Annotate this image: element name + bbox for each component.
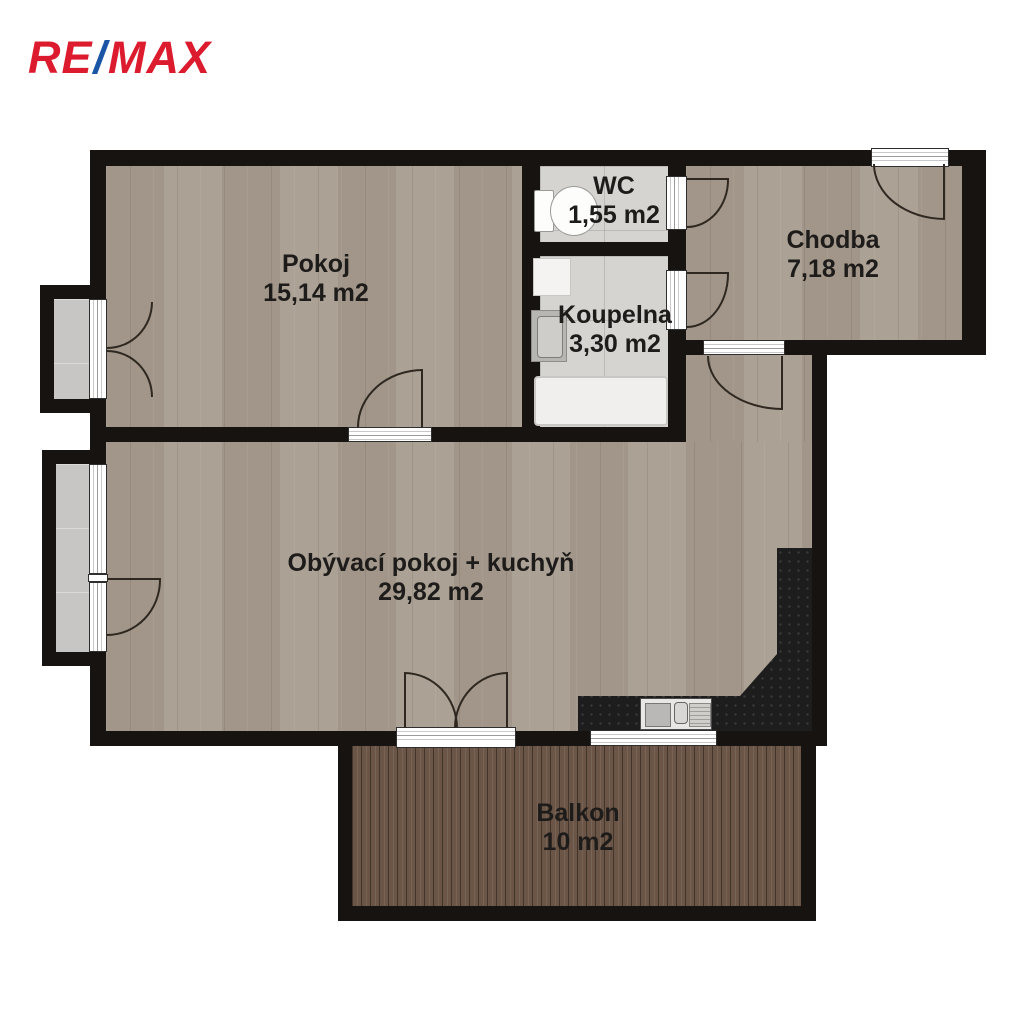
wall-obyvaci-bay-top	[42, 450, 92, 464]
pokoj-loggia-floor	[54, 299, 92, 399]
obyvaci-loggia-floor	[56, 464, 92, 652]
room-label-balkon: Balkon 10 m2	[536, 799, 619, 857]
chodba-obyvaci-door-threshold	[703, 340, 785, 355]
pokoj-door-threshold	[348, 427, 432, 442]
room-name: Obývací pokoj + kuchyň	[288, 549, 575, 578]
logo-max: MAX	[108, 32, 211, 83]
kitchen-window	[590, 730, 717, 746]
obyvaci-bay-window	[89, 464, 107, 574]
floor-plan: RE/MAX	[0, 0, 1024, 1024]
wall-balkon-bottom	[338, 906, 816, 921]
kitchen-sink-drainer	[689, 703, 711, 727]
room-label-wc: WC 1,55 m2	[568, 172, 660, 230]
remax-logo: RE/MAX	[28, 34, 211, 82]
room-area: 15,14 m2	[263, 279, 369, 308]
wall-balkon-right	[801, 746, 816, 921]
room-label-pokoj: Pokoj 15,14 m2	[263, 250, 369, 308]
room-area: 1,55 m2	[568, 201, 660, 230]
wall-pokoj-bay-left	[40, 285, 54, 413]
room-name: Pokoj	[263, 250, 369, 279]
bathtub	[534, 376, 668, 426]
logo-re: RE	[28, 32, 93, 83]
wall-obyvaci-bay-left	[42, 450, 56, 666]
pokoj-bay-french-door-frame	[89, 299, 107, 399]
room-name: Koupelna	[558, 301, 672, 330]
room-name: Chodba	[786, 226, 879, 255]
logo-slash-icon: /	[93, 32, 109, 83]
balkon-french-door-frame	[396, 727, 516, 748]
room-name: WC	[568, 172, 660, 201]
wall-wc-koupelna	[540, 242, 668, 256]
room-label-koupelna: Koupelna 3,30 m2	[558, 301, 672, 359]
kitchen-sink-basin	[645, 703, 671, 727]
wall-obyvaci-bay-bottom	[42, 652, 92, 666]
wall-right-upper	[962, 150, 986, 355]
room-area: 3,30 m2	[558, 330, 672, 359]
wall-pokoj-bay-bottom	[40, 399, 92, 413]
room-area: 10 m2	[536, 828, 619, 857]
room-area: 7,18 m2	[786, 255, 879, 284]
kitchen-sink-basin-small	[674, 702, 688, 724]
room-label-obyvaci: Obývací pokoj + kuchyň 29,82 m2	[288, 549, 575, 607]
wall-balkon-left	[338, 746, 352, 921]
room-name: Balkon	[536, 799, 619, 828]
room-label-chodba: Chodba 7,18 m2	[786, 226, 879, 284]
kitchen-sink	[640, 698, 712, 730]
obyvaci-bay-mullion	[88, 574, 108, 582]
room-area: 29,82 m2	[288, 578, 575, 607]
washing-machine	[533, 258, 571, 296]
wall-left	[90, 150, 106, 746]
wc-door-frame	[666, 176, 687, 230]
wall-pokoj-bay-top	[40, 285, 92, 299]
obyvaci-bay-door-frame	[89, 582, 107, 652]
wall-right-obyvaci	[812, 355, 827, 746]
